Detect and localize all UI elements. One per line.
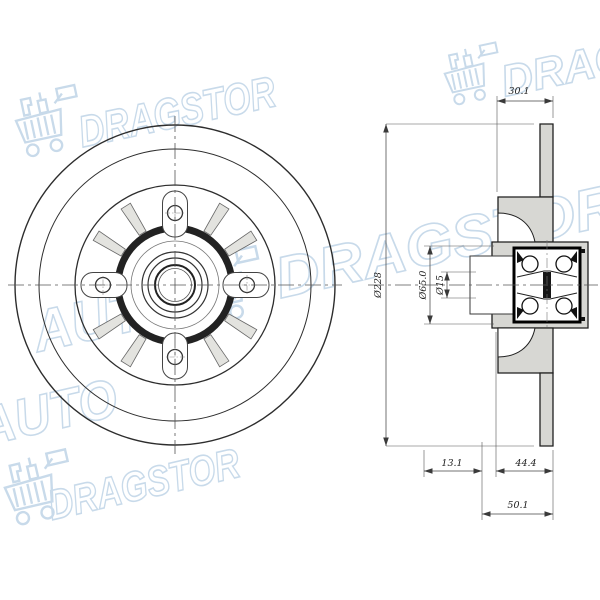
dim-label: 13.1 xyxy=(441,458,462,469)
dim-label: 50.1 xyxy=(507,500,528,511)
watermark-text: DRAGSTOR xyxy=(43,439,244,529)
brake-disc-drawing-page: DRAGSTOR DRAGSTOR AUTO DRAGSTOR AUTO DRA… xyxy=(0,0,600,600)
bearing-ball xyxy=(522,256,538,272)
friction-ring-section-bottom xyxy=(540,373,553,446)
bearing-ball xyxy=(556,298,572,314)
abs-ring-mark xyxy=(581,249,585,253)
shopping-cart-icon xyxy=(441,42,507,105)
dim-label: 44.4 xyxy=(514,458,536,469)
watermark-tile-bottom-left: AUTO DRAGSTOR xyxy=(0,368,245,529)
bearing-ball xyxy=(522,298,538,314)
vent-slot xyxy=(203,334,229,367)
watermark-tile-top-left: DRAGSTOR xyxy=(11,44,280,169)
dim-label: 30.1 xyxy=(508,86,529,97)
watermark-text: AUTO xyxy=(0,368,123,458)
friction-ring-section-top xyxy=(540,124,553,197)
dim-total-height: 50.1 xyxy=(482,500,553,514)
shopping-cart-icon xyxy=(11,85,87,158)
dim-left-offset: 13.1 xyxy=(424,442,482,520)
vent-slot xyxy=(224,231,257,257)
vent-slot xyxy=(121,203,147,236)
section-view xyxy=(368,124,598,446)
technical-drawing: DRAGSTOR DRAGSTOR AUTO DRAGSTOR AUTO DRA… xyxy=(0,0,600,600)
vent-slot xyxy=(93,231,126,257)
watermark-tile-top-right: DRAGSTOR xyxy=(441,0,600,118)
vent-slot xyxy=(203,203,229,236)
dim-label: Ø15 xyxy=(435,275,446,296)
abs-ring-mark xyxy=(581,317,585,321)
bearing-ball xyxy=(556,256,572,272)
dim-label: Ø65.0 xyxy=(418,271,429,301)
dim-label: Ø228 xyxy=(373,272,384,299)
